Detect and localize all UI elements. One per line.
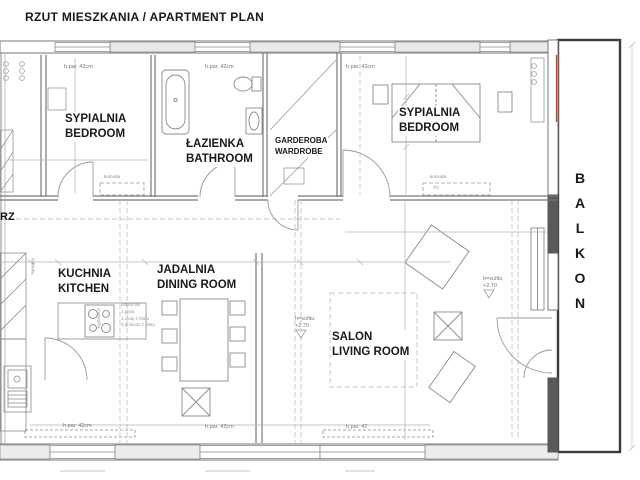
dresser-label-left: komoda	[104, 174, 120, 179]
kitchen-en: KITCHEN	[58, 282, 111, 297]
kitchen-pl: KUCHNIA	[58, 267, 111, 282]
room-label-dining: JADALNIA DINING ROOM	[156, 263, 237, 293]
bathtub-icon	[162, 70, 189, 134]
room-label-bathroom: ŁAZIENKA BATHROOM	[185, 137, 254, 167]
living-pl: SALON	[332, 330, 409, 345]
ceiling-note-1-label: h=sufitu	[295, 316, 314, 323]
room-label-kitchen: KUCHNIA KITCHEN	[57, 267, 112, 297]
fridge-label: lodówka	[30, 258, 35, 275]
bedroom-left-pl: SYPIALNIA	[65, 112, 126, 127]
kitchen-sink-icon	[4, 366, 31, 412]
floorplan-page: RZUT MIESZKANIA / APARTMENT PLAN SYPIALN…	[0, 0, 640, 480]
ceiling-note-1-value: +2.70	[295, 323, 314, 330]
plan-title: RZUT MIESZKANIA / APARTMENT PLAN	[25, 10, 264, 24]
kitchen-notes-header: odbiorniki:	[121, 302, 155, 309]
toilet-icon	[234, 77, 261, 91]
bathroom-sink-icon	[246, 108, 262, 134]
bathroom-en: BATHROOM	[186, 152, 253, 167]
dining-pl: JADALNIA	[157, 263, 236, 278]
floorplan-drawing	[0, 0, 640, 480]
wardrobe-shelving	[270, 60, 336, 196]
bathroom-pl: ŁAZIENKA	[186, 137, 253, 152]
bedroom-left-en: BEDROOM	[65, 127, 126, 142]
sill-note-bottom-3: h.par. 42	[346, 424, 367, 431]
corridor-partial-label: RZ	[0, 211, 15, 223]
room-label-living: SALON LIVING ROOM	[331, 330, 410, 360]
room-label-wardrobe: GARDEROBA WARDROBE	[274, 136, 328, 158]
room-label-bedroom-right: SYPIALNIA BEDROOM	[398, 106, 461, 136]
living-en: LIVING ROOM	[332, 345, 409, 360]
sill-note-bottom-1: h.par. 42cm	[63, 423, 92, 430]
balcony-outline	[558, 40, 635, 452]
ceiling-note-2-value: +2.70	[483, 283, 502, 290]
sill-note-top-3: h.par. 42cm	[346, 64, 375, 71]
wardrobe-en: WARDROBE	[275, 147, 327, 158]
bedroom-right-pl: SYPIALNIA	[399, 106, 460, 121]
ceiling-note-2: h=sufitu +2.70	[483, 276, 502, 289]
doors	[45, 150, 552, 380]
ceiling-note-1: h=sufitu +2.70	[295, 316, 314, 329]
wardrobe-pl: GARDEROBA	[275, 136, 327, 147]
kitchen-notes-item2: 2.okap z blatu	[121, 316, 155, 323]
kitchen-notes-item3: 3.gniazdo z blatu	[121, 322, 155, 329]
living-room-furniture	[405, 225, 544, 403]
dining-en: DINING ROOM	[157, 278, 236, 293]
room-label-bedroom-left: SYPIALNIA BEDROOM	[64, 112, 127, 142]
dresser-label-right: komoda	[430, 174, 446, 179]
dining-table-icon	[162, 299, 245, 416]
sill-note-top-1: h.par. 42cm	[64, 64, 93, 71]
dishwasher-label: zmywarka	[96, 308, 101, 328]
sill-note-bottom-2: h.par. 42cm	[205, 424, 234, 431]
ceiling-note-2-label: h=sufitu	[483, 276, 502, 283]
exterior-walls	[0, 40, 558, 460]
room-label-balcony: BALKON	[572, 170, 588, 320]
kitchen-notes: odbiorniki: 1.płyta 2.okap z blatu 3.gni…	[121, 302, 155, 329]
radiator-left-icon	[4, 62, 25, 81]
bedroom-right-en: BEDROOM	[399, 121, 460, 136]
radiator-right-bedroom-icon	[531, 58, 544, 122]
sill-note-top-2: h.par. 42cm	[205, 64, 234, 71]
kitchen-notes-item1: 1.płyta	[121, 309, 155, 316]
tv-label: TV	[433, 185, 439, 190]
